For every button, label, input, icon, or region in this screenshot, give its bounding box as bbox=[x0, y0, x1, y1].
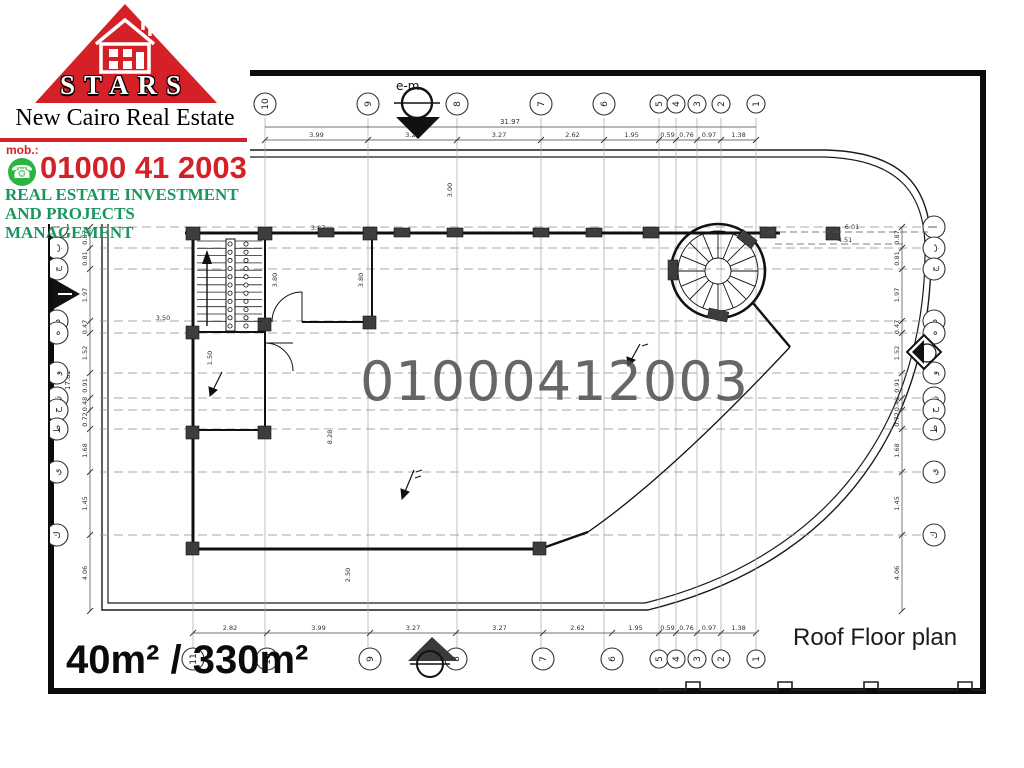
dimension-value: 1.38 bbox=[731, 131, 745, 139]
stair-baluster bbox=[228, 283, 232, 287]
phone-number: 01000 41 2003 bbox=[40, 150, 247, 186]
grid-bubble-label: 9 bbox=[366, 656, 376, 662]
grid-bubble-label: ط bbox=[930, 425, 940, 433]
section-marker-left bbox=[52, 278, 80, 310]
company-subtitle: REAL ESTATE INVESTMENT AND PROJECTS MANA… bbox=[5, 185, 250, 242]
mobile-label: mob.: bbox=[6, 143, 39, 157]
dimension-value: 1.97 bbox=[81, 288, 89, 302]
dimension-value: 0.47 bbox=[81, 320, 89, 334]
grid-bubble-label: و bbox=[930, 371, 940, 376]
spiral-spoke bbox=[730, 276, 755, 286]
watermark-phone: 01000412003 bbox=[360, 350, 749, 413]
dimension-value: 4.06 bbox=[893, 566, 901, 580]
dimension-value: 0.72 bbox=[81, 412, 89, 426]
door-arc bbox=[265, 343, 293, 371]
grid-bubble-label: 2 bbox=[717, 101, 727, 107]
scale-bar bbox=[658, 682, 984, 690]
stair-baluster bbox=[244, 250, 248, 254]
stair-baluster bbox=[244, 258, 248, 262]
dimension-value: 0.91 bbox=[81, 378, 89, 392]
overall-dim-value: 31.97 bbox=[500, 118, 520, 126]
stair-baluster bbox=[244, 275, 248, 279]
dimension-value: 1.68 bbox=[893, 443, 901, 457]
grid-bubble-label: 6 bbox=[600, 101, 610, 107]
dimension-value: 0.91 bbox=[893, 378, 901, 392]
spiral-spoke bbox=[690, 280, 709, 299]
grid-bubble-label: ي bbox=[930, 468, 940, 475]
dimension-value: 0.81 bbox=[81, 251, 89, 265]
stair-baluster bbox=[228, 267, 232, 271]
spiral-spoke bbox=[703, 234, 713, 259]
stair-baluster bbox=[228, 275, 232, 279]
grid-bubble-label: و bbox=[53, 371, 63, 376]
dimension-value: 1.68 bbox=[81, 443, 89, 457]
dimension-value: 0.81 bbox=[893, 251, 901, 265]
subtitle-line1: REAL ESTATE INVESTMENT bbox=[5, 185, 250, 204]
grid-bubble-label: ط bbox=[53, 425, 63, 433]
interior-dimension: 3.80 bbox=[357, 273, 365, 287]
dimension-value: 0.59 bbox=[660, 624, 674, 632]
grid-bubble-label: ب bbox=[930, 244, 940, 252]
dimension-value: 1.45 bbox=[81, 496, 89, 510]
grid-bubble-label: 7 bbox=[539, 656, 549, 662]
stair-baluster bbox=[244, 283, 248, 287]
stair-baluster bbox=[228, 242, 232, 246]
dimension-value: 4.06 bbox=[81, 566, 89, 580]
spiral-spoke bbox=[681, 276, 706, 286]
grid-bubble-label: ج bbox=[930, 266, 940, 272]
door-arc bbox=[272, 292, 302, 322]
grid-bubble-label: 9 bbox=[364, 101, 374, 107]
area-label: 40m² / 330m² bbox=[66, 638, 308, 683]
dimension-value: 3.27 bbox=[492, 131, 506, 139]
spiral-spoke bbox=[681, 256, 706, 266]
dimension-value: 1.97 bbox=[893, 288, 901, 302]
dimension-value: 1.52 bbox=[81, 346, 89, 360]
dimension-value: 0.87 bbox=[893, 230, 901, 244]
dimension-value: 1.52 bbox=[893, 346, 901, 360]
spiral-spoke bbox=[723, 234, 733, 259]
grid-bubble-label: ج bbox=[53, 266, 63, 272]
interior-dimension: 6.01 bbox=[845, 223, 859, 231]
dimension-value: 0.72 bbox=[893, 412, 901, 426]
dimension-value: 3.27 bbox=[492, 624, 506, 632]
interior-dimension: 2.50 bbox=[344, 568, 352, 582]
dimension-value: 0.97 bbox=[702, 131, 716, 139]
grid-bubble-label: 1 bbox=[752, 656, 762, 662]
dimension-value: 3.27 bbox=[406, 624, 420, 632]
dimension-value: 1.95 bbox=[628, 624, 642, 632]
north-symbol-bottom bbox=[408, 637, 458, 677]
stair-baluster bbox=[228, 258, 232, 262]
plan-title: Roof Floor plan bbox=[793, 624, 957, 652]
company-logo-block: STARS New Cairo Real Estate mob.: ☎ 0100… bbox=[0, 0, 250, 224]
north-symbol-top: e-m bbox=[394, 79, 440, 139]
grid-bubble-label: 4 bbox=[672, 656, 682, 662]
flyer-page: 3.993.273.272.621.950.590.760.971.382.82… bbox=[0, 0, 1024, 768]
dimension-value: 0.76 bbox=[679, 131, 693, 139]
stair-baluster bbox=[244, 316, 248, 320]
stair-baluster bbox=[244, 308, 248, 312]
spiral-spoke bbox=[727, 243, 746, 262]
stair-baluster bbox=[228, 308, 232, 312]
grid-bubble-label: ه bbox=[53, 330, 63, 335]
dimension-value: 0.48 bbox=[81, 397, 89, 411]
grid-bubble-label: ي bbox=[53, 468, 63, 475]
grid-bubble-label: 6 bbox=[608, 656, 618, 662]
spiral-staircase bbox=[668, 224, 765, 322]
dimension-value: 2.62 bbox=[570, 624, 584, 632]
stair-baluster bbox=[228, 299, 232, 303]
grid-bubble-label: 5 bbox=[655, 101, 665, 107]
dimension-value: 0.48 bbox=[893, 397, 901, 411]
grid-bubble-label: 8 bbox=[453, 101, 463, 107]
divider-rule bbox=[0, 138, 247, 142]
grid-bubble-label: 5 bbox=[655, 656, 665, 662]
stair-baluster bbox=[244, 291, 248, 295]
grid-bubble-label: 4 bbox=[672, 101, 682, 107]
interior-dimension: 1.50 bbox=[206, 351, 214, 365]
interior-dimension: 3.50 bbox=[156, 314, 170, 322]
dimension-value: 0.97 bbox=[702, 624, 716, 632]
dimension-value: 2.62 bbox=[565, 131, 579, 139]
grid-bubble-label: ب bbox=[53, 244, 63, 252]
interior-dimension: 3.00 bbox=[446, 183, 454, 197]
company-tagline: New Cairo Real Estate bbox=[0, 105, 250, 132]
dimension-value: 1.45 bbox=[893, 496, 901, 510]
spiral-spoke bbox=[723, 283, 733, 308]
spiral-spoke bbox=[730, 256, 755, 266]
whatsapp-icon: ☎ bbox=[8, 158, 36, 186]
svg-text:e-m: e-m bbox=[396, 79, 419, 93]
subtitle-line2: AND PROJECTS MANAGEMENT bbox=[5, 204, 250, 242]
stair-baluster bbox=[228, 250, 232, 254]
interior-dimension: 3.80 bbox=[271, 273, 279, 287]
stair-arrow bbox=[202, 250, 212, 326]
stair-baluster bbox=[244, 267, 248, 271]
grid-bubble-label: ك bbox=[930, 531, 940, 538]
dimension-value: 1.95 bbox=[624, 131, 638, 139]
stair-baluster bbox=[244, 324, 248, 328]
dimension-value: 0.76 bbox=[679, 624, 693, 632]
company-name: STARS bbox=[0, 70, 250, 101]
spiral-spoke bbox=[703, 283, 713, 308]
grid-bubble-label: ك bbox=[53, 531, 63, 538]
grid-bubble-label: 3 bbox=[693, 656, 703, 662]
grid-bubble-label: ح bbox=[930, 407, 940, 413]
grid-bubble-label: ح bbox=[53, 407, 63, 413]
dimension-value: 3.99 bbox=[309, 131, 323, 139]
spiral-spoke bbox=[727, 280, 746, 299]
grid-bubble-label: 1 bbox=[752, 101, 762, 107]
stair-baluster bbox=[244, 299, 248, 303]
grid-bubble-label: 7 bbox=[537, 101, 547, 107]
spiral-spoke bbox=[690, 243, 709, 262]
dimension-value: 0.59 bbox=[660, 131, 674, 139]
dimension-value: 0.47 bbox=[893, 320, 901, 334]
stair-baluster bbox=[228, 316, 232, 320]
interior-dimension: 8.28 bbox=[326, 430, 334, 444]
dimension-value: 2.82 bbox=[223, 624, 237, 632]
grid-bubble-label: ه bbox=[930, 330, 940, 335]
grid-bubble-label: أ bbox=[928, 226, 940, 229]
grid-bubble-label: 3 bbox=[693, 101, 703, 107]
dimension-value: 1.38 bbox=[731, 624, 745, 632]
stair-baluster bbox=[228, 291, 232, 295]
grid-bubble-label: 10 bbox=[261, 98, 271, 110]
stair-baluster bbox=[228, 324, 232, 328]
grid-bubble-label: 2 bbox=[717, 656, 727, 662]
dimension-value: 3.99 bbox=[311, 624, 325, 632]
stair-baluster bbox=[244, 242, 248, 246]
